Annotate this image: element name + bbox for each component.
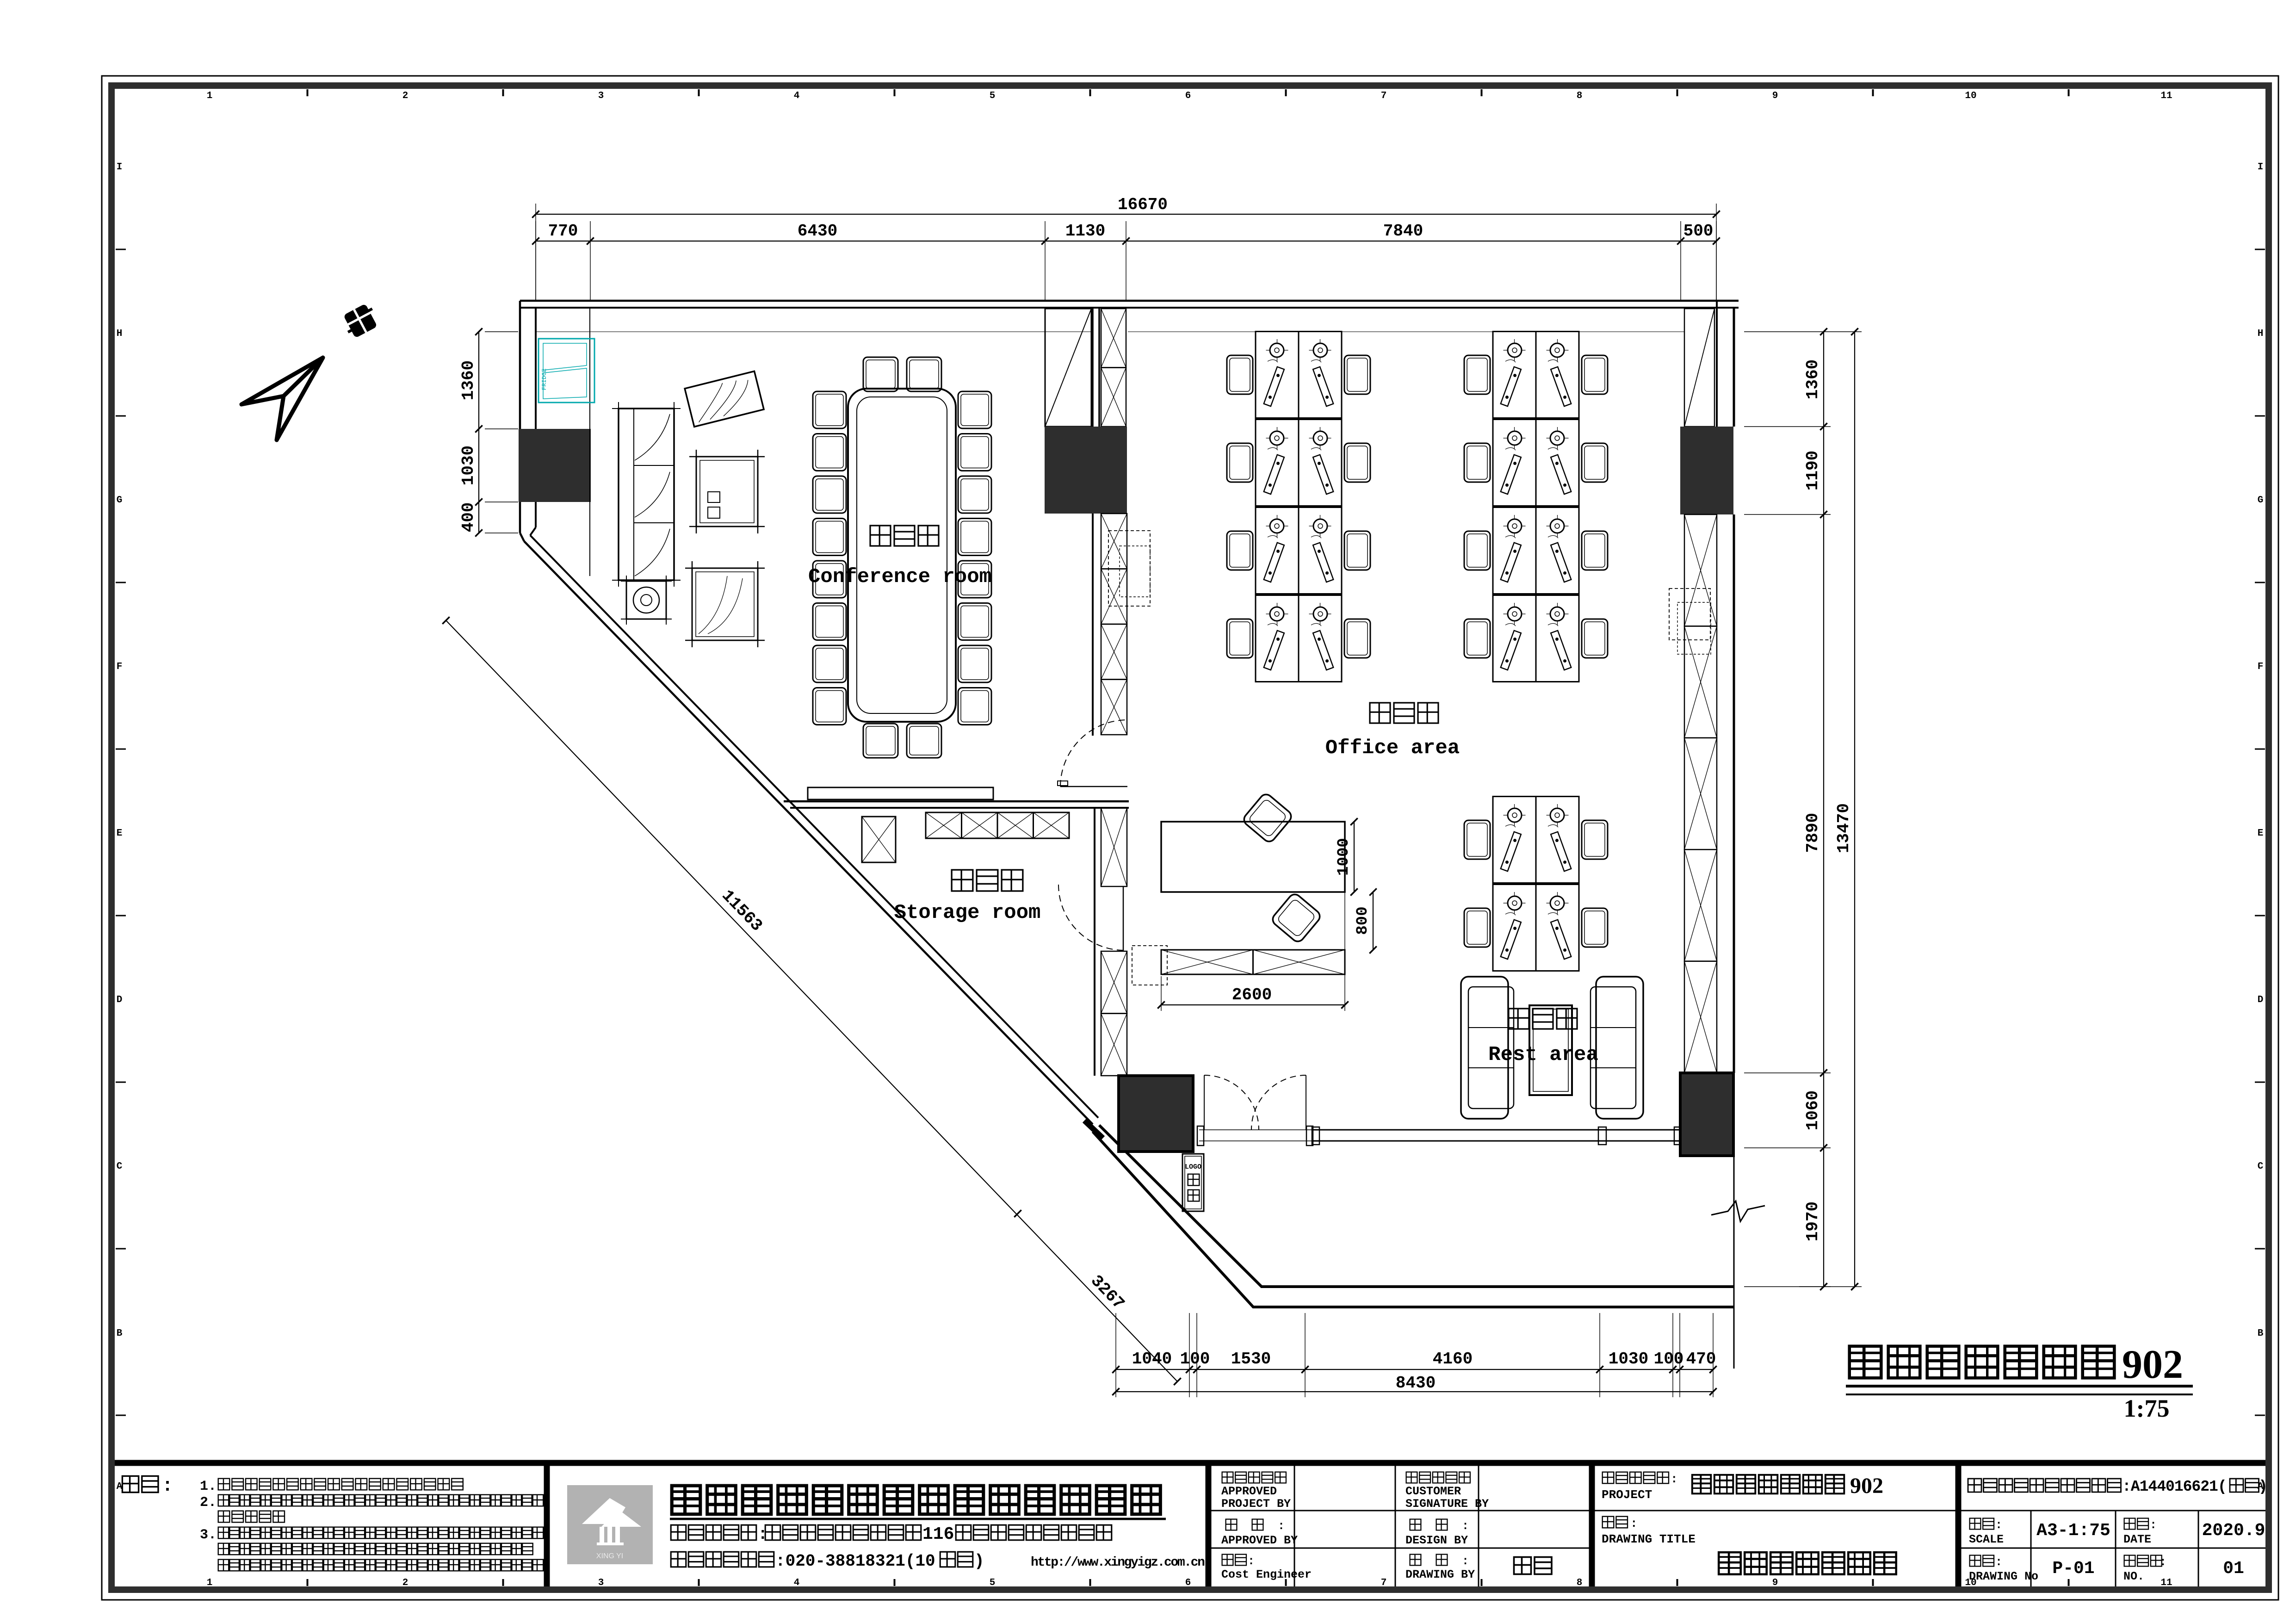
svg-text:I: I xyxy=(117,162,123,173)
svg-text:5: 5 xyxy=(990,1578,996,1588)
svg-text:2020.9: 2020.9 xyxy=(2202,1521,2265,1541)
svg-text:400: 400 xyxy=(459,502,478,533)
svg-text::020-38818321(10: :020-38818321(10 xyxy=(775,1552,935,1571)
svg-text:C: C xyxy=(117,1161,123,1172)
svg-text:3.: 3. xyxy=(200,1527,217,1543)
svg-text:7: 7 xyxy=(1381,91,1387,101)
svg-text:DRAWING TITLE: DRAWING TITLE xyxy=(1602,1532,1696,1546)
svg-text:http://www.xingyigz.com.cn: http://www.xingyigz.com.cn xyxy=(1031,1555,1205,1570)
svg-text:5: 5 xyxy=(990,91,996,101)
svg-text:I: I xyxy=(2258,162,2264,173)
svg-text:1530: 1530 xyxy=(1231,1350,1271,1369)
svg-text:8: 8 xyxy=(1577,1578,1583,1588)
svg-text:APPROVED: APPROVED xyxy=(1221,1485,1277,1498)
svg-text:10: 10 xyxy=(1965,91,1976,101)
svg-text:H: H xyxy=(2258,328,2264,339)
svg-text:CUSTOMER: CUSTOMER xyxy=(1405,1485,1461,1498)
svg-text:Conference room: Conference room xyxy=(808,565,991,588)
svg-text:2.: 2. xyxy=(200,1495,217,1511)
svg-text::: : xyxy=(1248,1555,1255,1568)
svg-text::A144016621(: :A144016621( xyxy=(2122,1478,2227,1495)
svg-text:DESIGN BY: DESIGN BY xyxy=(1405,1534,1468,1547)
svg-text::: : xyxy=(1462,1555,1469,1568)
svg-text:SCALE: SCALE xyxy=(1969,1533,2004,1546)
svg-text:1130: 1130 xyxy=(1065,222,1105,241)
svg-text:NO.: NO. xyxy=(2123,1570,2144,1583)
svg-text:7890: 7890 xyxy=(1803,813,1822,853)
svg-text::: : xyxy=(1995,1555,2002,1569)
svg-text:11: 11 xyxy=(2160,91,2172,101)
svg-text:Office area: Office area xyxy=(1325,737,1460,760)
svg-text:DATE: DATE xyxy=(2123,1533,2151,1546)
svg-text:3: 3 xyxy=(598,91,604,101)
svg-text:1030: 1030 xyxy=(459,446,478,485)
svg-text:902: 902 xyxy=(2122,1342,2183,1387)
svg-text:DRAWING No: DRAWING No xyxy=(1969,1570,2038,1583)
svg-text:1970: 1970 xyxy=(1803,1202,1822,1241)
svg-text:FRIDGE: FRIDGE xyxy=(541,368,548,390)
svg-text:1190: 1190 xyxy=(1803,451,1822,490)
svg-text:470: 470 xyxy=(1686,1350,1716,1369)
svg-text:D: D xyxy=(117,995,123,1005)
svg-text:100: 100 xyxy=(1180,1350,1210,1369)
svg-text:4: 4 xyxy=(794,91,800,101)
svg-text:1040: 1040 xyxy=(1132,1350,1172,1369)
svg-text:8: 8 xyxy=(1577,91,1583,101)
svg-text:1: 1 xyxy=(207,1578,213,1588)
svg-text:): ) xyxy=(2259,1478,2268,1495)
svg-text:A3-1:75: A3-1:75 xyxy=(2036,1521,2110,1541)
svg-text:7: 7 xyxy=(1381,1578,1387,1588)
svg-text:Cost Engineer: Cost Engineer xyxy=(1221,1568,1312,1581)
svg-text:6: 6 xyxy=(1185,91,1191,101)
svg-text:9: 9 xyxy=(1772,91,1778,101)
svg-text::: : xyxy=(2150,1518,2157,1532)
svg-text:1060: 1060 xyxy=(1803,1090,1822,1130)
svg-text:7840: 7840 xyxy=(1383,222,1423,241)
svg-text:1:75: 1:75 xyxy=(2124,1394,2170,1422)
svg-text:F: F xyxy=(2258,662,2264,672)
svg-text::: : xyxy=(1278,1519,1285,1533)
svg-text:P-01: P-01 xyxy=(2052,1559,2094,1579)
svg-text:13470: 13470 xyxy=(1834,803,1853,853)
svg-text::: : xyxy=(1630,1517,1638,1530)
svg-text::: : xyxy=(162,1476,173,1497)
svg-text:2: 2 xyxy=(402,1578,408,1588)
svg-text:Rest area: Rest area xyxy=(1488,1043,1598,1066)
svg-text:8430: 8430 xyxy=(1396,1374,1436,1393)
svg-text:PROJECT: PROJECT xyxy=(1602,1488,1652,1502)
svg-text:902: 902 xyxy=(1850,1474,1883,1498)
svg-text:XING YI: XING YI xyxy=(596,1552,623,1560)
svg-text:11: 11 xyxy=(2160,1578,2172,1588)
svg-text:500: 500 xyxy=(1683,222,1714,241)
svg-text:1360: 1360 xyxy=(1803,359,1822,399)
svg-text:SIGNATURE BY: SIGNATURE BY xyxy=(1405,1497,1489,1511)
svg-text:6430: 6430 xyxy=(798,222,837,241)
svg-text:E: E xyxy=(117,828,123,839)
svg-text:16670: 16670 xyxy=(1118,195,1168,214)
svg-text:D: D xyxy=(2258,995,2264,1005)
svg-text:9: 9 xyxy=(1772,1578,1778,1588)
svg-text:1030: 1030 xyxy=(1609,1350,1648,1369)
svg-text::: : xyxy=(1995,1518,2002,1532)
svg-text:E: E xyxy=(2258,828,2264,839)
svg-text::: : xyxy=(1671,1472,1678,1486)
svg-text:4160: 4160 xyxy=(1433,1350,1473,1369)
svg-text:C: C xyxy=(2258,1161,2264,1172)
svg-text:800: 800 xyxy=(1354,906,1372,935)
svg-text:100: 100 xyxy=(1654,1350,1684,1369)
svg-text:3: 3 xyxy=(598,1578,604,1588)
svg-text::: : xyxy=(758,1525,768,1544)
svg-text:G: G xyxy=(2258,495,2264,506)
svg-text:B: B xyxy=(117,1328,123,1339)
svg-text:LOGO: LOGO xyxy=(1185,1163,1201,1171)
svg-text:Storage room: Storage room xyxy=(894,901,1041,924)
svg-text:): ) xyxy=(974,1552,984,1571)
svg-text:G: G xyxy=(117,495,123,506)
svg-text:1.: 1. xyxy=(200,1479,217,1494)
svg-text:PROJECT BY: PROJECT BY xyxy=(1221,1497,1291,1511)
svg-text::: : xyxy=(2160,1555,2166,1569)
svg-text:2600: 2600 xyxy=(1232,985,1272,1004)
svg-text:1000: 1000 xyxy=(1335,838,1353,876)
svg-text:116: 116 xyxy=(922,1524,954,1544)
svg-text::: : xyxy=(1462,1519,1469,1533)
svg-text:1: 1 xyxy=(207,91,213,101)
svg-text:DRAWING BY: DRAWING BY xyxy=(1405,1568,1475,1581)
svg-text:6: 6 xyxy=(1185,1578,1191,1588)
svg-text:1360: 1360 xyxy=(459,360,478,400)
svg-text:F: F xyxy=(117,662,123,672)
svg-text:B: B xyxy=(2258,1328,2264,1339)
svg-text:H: H xyxy=(117,328,123,339)
svg-text:4: 4 xyxy=(794,1578,800,1588)
svg-text:01: 01 xyxy=(2223,1559,2244,1579)
svg-text:770: 770 xyxy=(548,222,578,241)
svg-text:2: 2 xyxy=(402,91,408,101)
svg-text:APPROVED BY: APPROVED BY xyxy=(1221,1534,1298,1547)
